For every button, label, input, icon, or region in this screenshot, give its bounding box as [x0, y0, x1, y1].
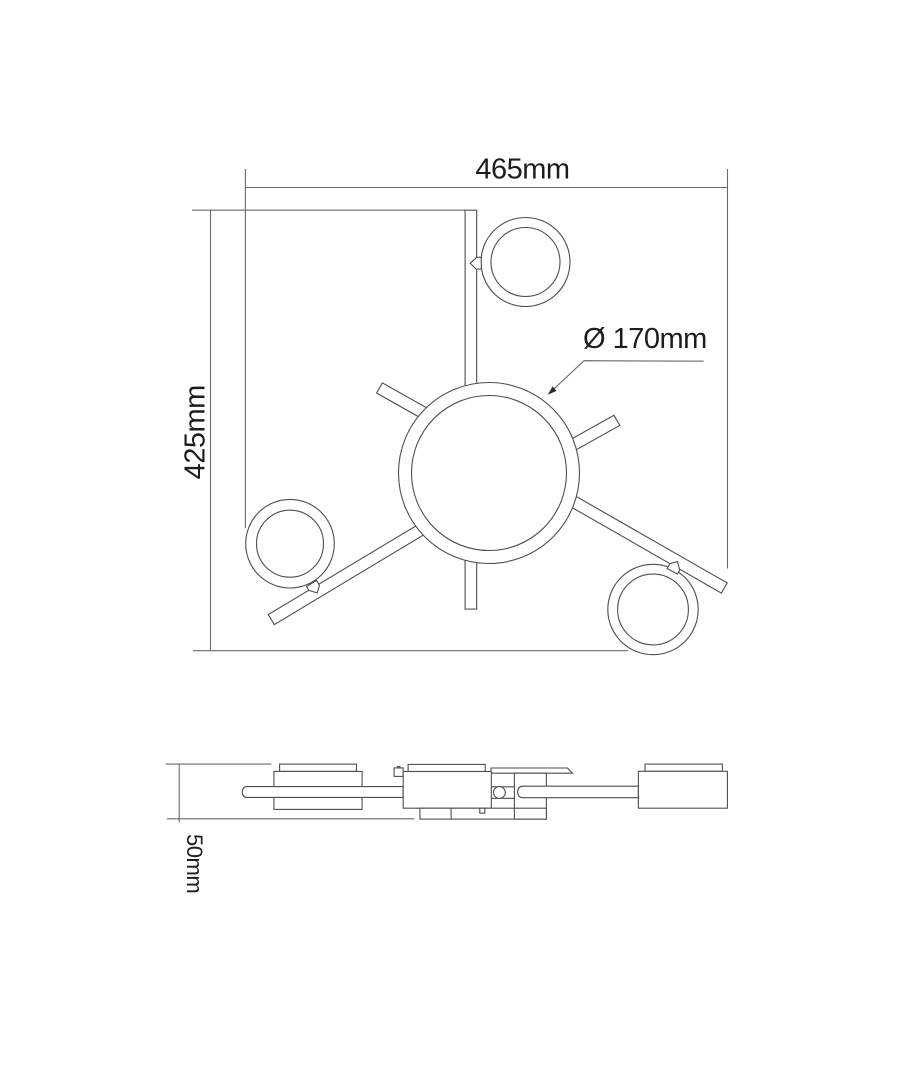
svg-text:Ø 170mm: Ø 170mm: [583, 323, 707, 355]
svg-text:465mm: 465mm: [475, 154, 569, 186]
svg-text:425mm: 425mm: [179, 385, 211, 479]
svg-text:50mm: 50mm: [182, 834, 207, 893]
